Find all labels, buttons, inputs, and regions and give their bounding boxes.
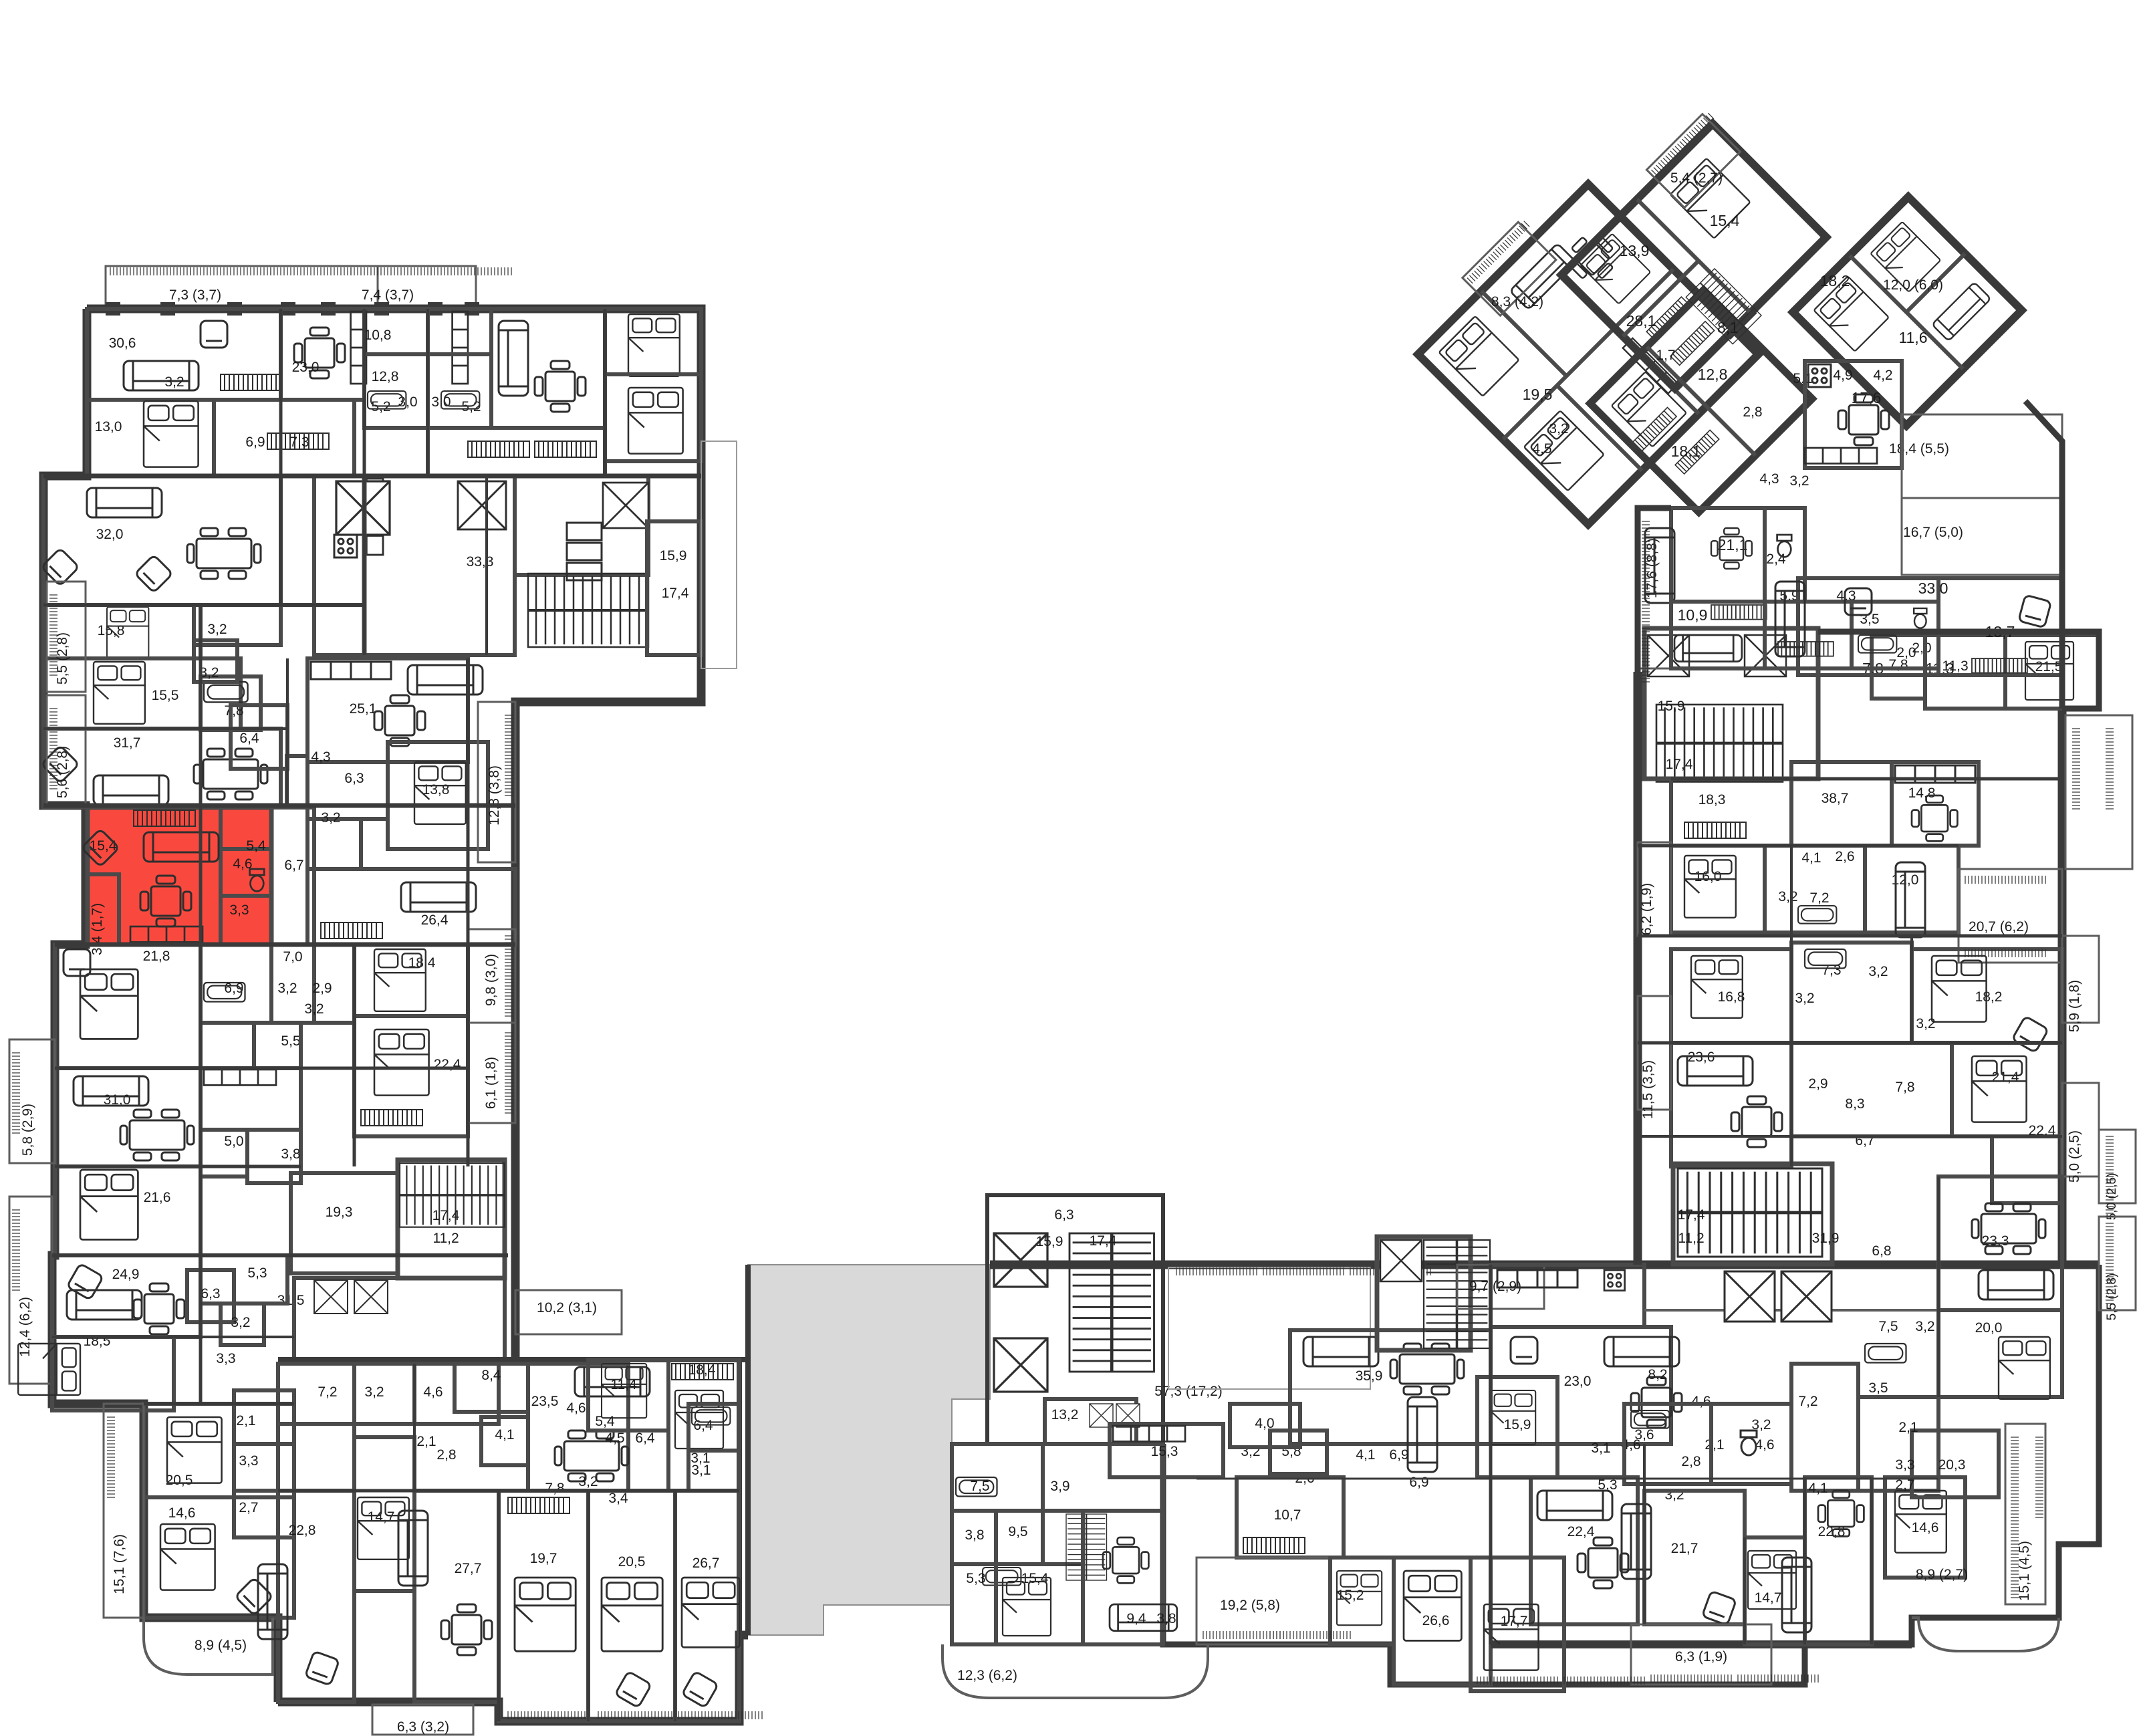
svg-text:6,1 (1,8): 6,1 (1,8) [483,1057,499,1109]
svg-text:9,4: 9,4 [1126,1611,1146,1626]
svg-text:20,7 (6,2): 20,7 (6,2) [1969,919,2029,935]
svg-text:20,5: 20,5 [166,1473,193,1488]
svg-text:1,7: 1,7 [1656,348,1675,363]
svg-text:3,3: 3,3 [216,1351,235,1366]
svg-text:13,2: 13,2 [1051,1407,1079,1422]
svg-text:18,1: 18,1 [1671,443,1701,460]
svg-text:6,9: 6,9 [245,435,265,450]
svg-text:4,3: 4,3 [311,749,330,765]
svg-text:14,6: 14,6 [1912,1520,1939,1535]
svg-text:6,3: 6,3 [344,771,364,786]
svg-text:5,0: 5,0 [224,1134,243,1149]
svg-text:31,5: 31,5 [277,1293,305,1308]
svg-text:3,2: 3,2 [1915,1319,1934,1334]
svg-text:8,2: 8,2 [1648,1367,1667,1382]
svg-text:7,3: 7,3 [289,435,309,450]
svg-text:2,8: 2,8 [1681,1454,1701,1469]
svg-text:2,0: 2,0 [1896,645,1916,660]
svg-text:8,9 (4,5): 8,9 (4,5) [195,1638,247,1653]
svg-text:7,8: 7,8 [545,1481,564,1496]
svg-text:5,2: 5,2 [371,399,390,414]
svg-text:3,1: 3,1 [690,1451,710,1466]
svg-text:21,6: 21,6 [144,1190,171,1205]
svg-text:15,3: 15,3 [1151,1444,1178,1459]
svg-text:38,7: 38,7 [1821,791,1849,806]
svg-text:23,5: 23,5 [531,1394,559,1409]
svg-text:4,2: 4,2 [1873,368,1892,383]
svg-text:8,9 (2,7): 8,9 (2,7) [1916,1567,1968,1582]
svg-text:31,9: 31,9 [1812,1231,1840,1246]
svg-text:7,2: 7,2 [1798,1394,1817,1409]
svg-text:5,8 (2,9): 5,8 (2,9) [20,1104,35,1156]
svg-text:5,5: 5,5 [281,1033,300,1049]
svg-text:14,6: 14,6 [168,1505,196,1521]
svg-text:5,4: 5,4 [595,1414,615,1429]
svg-text:3,8: 3,8 [965,1527,984,1543]
svg-text:12,4 (6,2): 12,4 (6,2) [17,1297,33,1357]
svg-text:3,4: 3,4 [608,1491,628,1506]
svg-text:4,3: 4,3 [1759,471,1779,487]
svg-text:3,2: 3,2 [578,1474,598,1489]
svg-text:11,6: 11,6 [1898,329,1927,346]
svg-text:5,4: 5,4 [246,838,266,854]
svg-text:6,3 (3,2): 6,3 (3,2) [397,1719,449,1735]
svg-text:8,1: 8,1 [1717,319,1739,336]
svg-text:12,8: 12,8 [1698,366,1728,383]
svg-text:5,3: 5,3 [966,1571,985,1586]
svg-text:3,3: 3,3 [229,902,249,918]
svg-text:5,6 (2,8): 5,6 (2,8) [55,746,70,798]
svg-text:33,3: 33,3 [467,554,494,570]
svg-text:15,1 (4,5): 15,1 (4,5) [2017,1541,2032,1601]
svg-text:3,3: 3,3 [1895,1457,1914,1473]
svg-text:8,3: 8,3 [1845,1096,1864,1112]
svg-text:3,2: 3,2 [1789,473,1809,489]
svg-text:3,2: 3,2 [1868,964,1888,979]
svg-text:9,5: 9,5 [1008,1524,1027,1539]
svg-text:2,1: 2,1 [1705,1437,1724,1453]
svg-text:4,6: 4,6 [1755,1437,1774,1453]
svg-text:6,8: 6,8 [1872,1243,1891,1259]
svg-text:18,2: 18,2 [1820,272,1850,289]
svg-text:8,3 (4,2): 8,3 (4,2) [1491,294,1543,309]
svg-text:3,8: 3,8 [281,1146,300,1162]
svg-text:6,2 (1,9): 6,2 (1,9) [1639,883,1654,935]
svg-text:7,2: 7,2 [1809,890,1829,906]
svg-text:15,9: 15,9 [1036,1234,1063,1249]
svg-text:5,9 (1,8): 5,9 (1,8) [2067,980,2082,1032]
svg-text:5,0 (2,5): 5,0 (2,5) [2067,1130,2082,1183]
svg-text:2,6: 2,6 [1835,849,1854,864]
svg-text:4,1: 4,1 [1801,850,1821,866]
svg-text:3,2: 3,2 [199,665,219,680]
svg-text:18,4: 18,4 [688,1362,716,1378]
svg-text:11,2: 11,2 [1678,1231,1704,1246]
svg-text:21,8: 21,8 [143,949,170,964]
svg-text:3,2: 3,2 [1795,991,1814,1006]
svg-text:16,7 (5,0): 16,7 (5,0) [1903,525,1963,540]
svg-text:14,8: 14,8 [1908,785,1936,801]
svg-text:23,0: 23,0 [292,360,320,375]
svg-text:10,7: 10,7 [1274,1507,1301,1523]
svg-text:14,7: 14,7 [1755,1590,1782,1606]
svg-text:12,8 (3,8): 12,8 (3,8) [487,765,502,826]
svg-text:6,7: 6,7 [284,858,303,873]
svg-text:21,4: 21,4 [1992,1070,2019,1085]
svg-text:13,9: 13,9 [1620,242,1650,259]
svg-text:20,5: 20,5 [618,1554,646,1570]
svg-text:7,0: 7,0 [283,949,302,965]
svg-text:20,0: 20,0 [1975,1320,2003,1336]
svg-text:10,9: 10,9 [1678,606,1708,624]
svg-text:2,9: 2,9 [312,981,332,996]
svg-text:3,2: 3,2 [164,374,184,390]
svg-text:3,8: 3,8 [1156,1611,1176,1626]
svg-text:6,9: 6,9 [1409,1475,1428,1490]
svg-text:10,8: 10,8 [364,328,392,343]
svg-text:35,9: 35,9 [1356,1368,1383,1384]
svg-text:17,4: 17,4 [1678,1207,1705,1223]
svg-text:4,9: 4,9 [1833,368,1852,383]
svg-text:15,5: 15,5 [152,688,179,703]
svg-text:23,0: 23,0 [1564,1374,1592,1389]
svg-text:6,4: 6,4 [239,731,259,746]
svg-text:30,6: 30,6 [109,336,136,351]
svg-text:5,5 (2,8): 5,5 (2,8) [55,632,70,685]
svg-text:3,5: 3,5 [1868,1380,1888,1396]
svg-text:25,1: 25,1 [350,701,377,717]
svg-text:15,9: 15,9 [660,548,687,564]
svg-text:5,3: 5,3 [247,1265,267,1281]
svg-text:16,8: 16,8 [1718,989,1745,1005]
svg-text:21,7: 21,7 [1671,1541,1698,1556]
svg-text:3,2: 3,2 [321,810,340,826]
svg-text:17,4: 17,4 [1666,757,1693,772]
svg-text:12,8: 12,8 [372,369,399,384]
svg-text:6,3 (1,9): 6,3 (1,9) [1675,1649,1727,1664]
svg-text:11,2: 11,2 [432,1231,459,1246]
svg-text:3,2: 3,2 [364,1384,384,1400]
svg-text:2,9: 2,9 [1808,1076,1828,1092]
svg-text:13,0: 13,0 [95,419,122,435]
svg-text:15,1 (7,6): 15,1 (7,6) [112,1534,127,1594]
svg-text:4,1: 4,1 [1356,1447,1375,1463]
svg-text:8,4: 8,4 [481,1368,501,1383]
svg-text:4,6: 4,6 [1691,1394,1711,1409]
svg-text:19,7: 19,7 [530,1551,557,1566]
svg-text:15,9: 15,9 [1504,1417,1531,1433]
svg-text:7,2: 7,2 [318,1384,337,1400]
svg-text:3,2: 3,2 [207,622,227,637]
svg-text:33,0: 33,0 [1918,580,1948,597]
svg-text:17,4: 17,4 [432,1208,460,1223]
svg-text:57,3 (17,2): 57,3 (17,2) [1154,1384,1223,1399]
svg-text:4,5: 4,5 [1532,441,1551,457]
svg-text:4,1: 4,1 [495,1427,514,1443]
svg-text:15,4: 15,4 [1710,212,1740,229]
svg-text:2,4: 2,4 [1766,551,1786,567]
svg-text:10,2 (3,1): 10,2 (3,1) [537,1300,597,1316]
svg-text:3,3: 3,3 [239,1453,258,1469]
svg-text:2,1: 2,1 [236,1413,255,1429]
svg-text:28,1: 28,1 [1626,312,1656,330]
svg-text:6,3: 6,3 [201,1286,220,1301]
svg-text:26,7: 26,7 [693,1556,720,1571]
svg-text:4,5: 4,5 [605,1431,624,1446]
svg-text:3,9: 3,9 [1050,1479,1069,1494]
svg-text:19,3: 19,3 [326,1205,353,1220]
svg-text:6,3: 6,3 [1054,1207,1074,1223]
svg-text:22,8: 22,8 [289,1523,316,1538]
svg-text:13,8: 13,8 [422,782,450,797]
svg-text:3,2: 3,2 [1916,1016,1935,1031]
svg-text:2,8: 2,8 [1743,404,1762,420]
svg-text:2,7: 2,7 [239,1500,258,1515]
svg-text:9,8 (3,0): 9,8 (3,0) [483,954,499,1006]
svg-text:5,4 (2,7): 5,4 (2,7) [1670,170,1723,186]
svg-text:22,4: 22,4 [1567,1524,1595,1539]
svg-text:11,5 (3,5): 11,5 (3,5) [1640,1060,1656,1119]
svg-text:24,9: 24,9 [112,1267,140,1282]
svg-text:17,6: 17,6 [1852,389,1882,406]
svg-text:3,2: 3,2 [1549,421,1568,437]
svg-text:2,1: 2,1 [416,1434,436,1449]
svg-text:7,8: 7,8 [1895,1080,1914,1095]
svg-text:7,3 (3,7): 7,3 (3,7) [169,287,221,303]
svg-text:5,2: 5,2 [461,399,481,414]
svg-text:18,3: 18,3 [1698,792,1726,808]
svg-text:4,6: 4,6 [566,1400,586,1416]
svg-text:6,4: 6,4 [635,1431,655,1446]
svg-text:15,9: 15,9 [1658,699,1685,714]
svg-text:22,4: 22,4 [434,1057,461,1072]
svg-text:26,4: 26,4 [421,912,449,928]
svg-text:19,5: 19,5 [1523,386,1553,403]
svg-text:2,1: 2,1 [1898,1420,1918,1435]
svg-text:17,4: 17,4 [662,586,689,601]
svg-text:7,5: 7,5 [1878,1319,1898,1334]
svg-text:3,2: 3,2 [1778,889,1797,904]
svg-text:26,6: 26,6 [1422,1613,1450,1628]
svg-text:18,2: 18,2 [1975,989,2003,1005]
svg-text:3,0: 3,0 [398,394,417,410]
svg-text:31,7: 31,7 [114,735,141,751]
svg-text:3,1: 3,1 [1591,1441,1610,1456]
svg-text:17,4: 17,4 [1090,1233,1117,1249]
svg-text:3,2: 3,2 [231,1315,250,1330]
svg-text:6,9: 6,9 [1389,1447,1408,1463]
svg-text:27,7: 27,7 [455,1561,482,1576]
svg-text:3,4 (1,7): 3,4 (1,7) [90,903,105,955]
svg-text:12,3 (6,2): 12,3 (6,2) [957,1668,1017,1683]
svg-text:12,0 (6,0): 12,0 (6,0) [1883,277,1943,293]
svg-text:7,4 (3,7): 7,4 (3,7) [362,287,414,303]
svg-text:19,2 (5,8): 19,2 (5,8) [1220,1598,1280,1613]
svg-text:21,5: 21,5 [2035,659,2063,674]
svg-text:3,2: 3,2 [304,1001,324,1017]
svg-text:4,1: 4,1 [1808,1481,1828,1496]
svg-text:20,3: 20,3 [1938,1457,1966,1473]
svg-text:32,0: 32,0 [96,527,124,542]
svg-text:2,8: 2,8 [436,1447,456,1463]
svg-text:4,6: 4,6 [423,1384,443,1400]
svg-text:3,2: 3,2 [277,981,297,996]
svg-text:18,4 (5,5): 18,4 (5,5) [1889,441,1949,457]
